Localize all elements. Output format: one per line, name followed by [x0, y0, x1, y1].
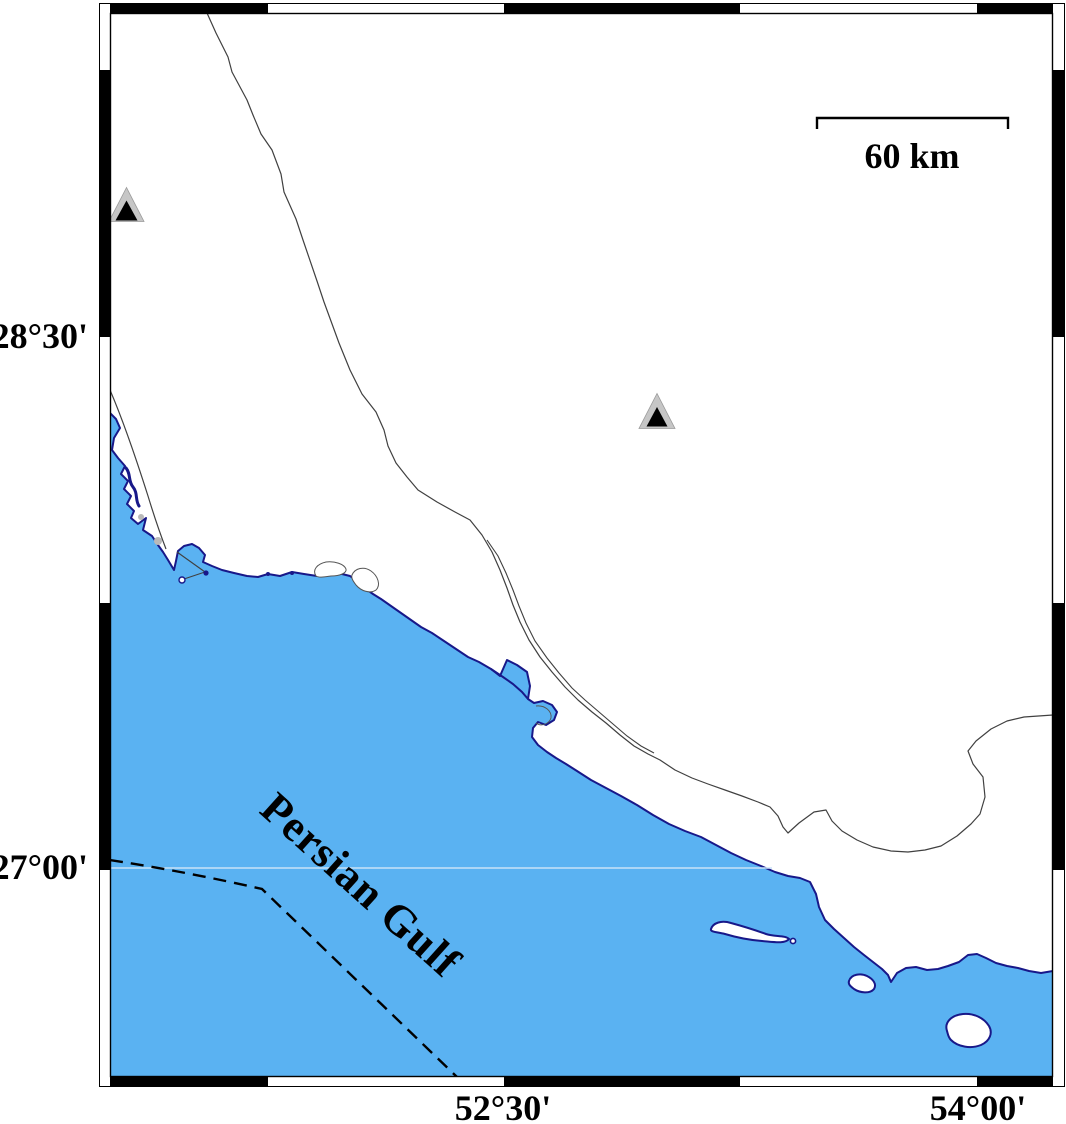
scale-bar-bracket — [817, 118, 1008, 129]
station-triangle-1 — [109, 188, 144, 222]
coast-dot — [290, 571, 294, 575]
mudflat-patch — [138, 514, 144, 520]
islet-ring — [179, 577, 185, 583]
frame-segment — [1053, 603, 1064, 870]
frame-segment — [1053, 70, 1064, 337]
map-page: Persian Gulf 60 km 28°30' 27°00' 52°30' — [0, 0, 1066, 1124]
islet-dot — [203, 570, 208, 575]
sea-polygon-and-coastline — [110, 413, 1053, 1077]
frame-segment — [977, 3, 1053, 13]
frame-segment — [99, 70, 110, 337]
station-triangle-2 — [639, 394, 675, 429]
coast-dot — [266, 572, 270, 576]
islet-ring — [790, 938, 795, 943]
lat-label-28-30: 28°30' — [0, 316, 88, 356]
frame-segment — [110, 3, 268, 13]
frame-segment — [110, 1077, 268, 1087]
lat-label-27-00: 27°00' — [0, 847, 88, 887]
lon-label-54-00: 54°00' — [930, 1088, 1026, 1124]
mudflat-patch — [154, 537, 162, 545]
frame-segment — [99, 603, 110, 870]
scale-bar-label: 60 km — [864, 136, 959, 176]
coastal-flat-west — [315, 562, 346, 577]
lon-label-52-30: 52°30' — [455, 1088, 551, 1124]
frame-segment — [504, 3, 740, 13]
frame-segment — [977, 1077, 1053, 1087]
map-canvas: Persian Gulf 60 km 28°30' 27°00' 52°30' — [0, 0, 1066, 1124]
scale-bar: 60 km — [817, 118, 1008, 176]
frame-segment — [504, 1077, 740, 1087]
